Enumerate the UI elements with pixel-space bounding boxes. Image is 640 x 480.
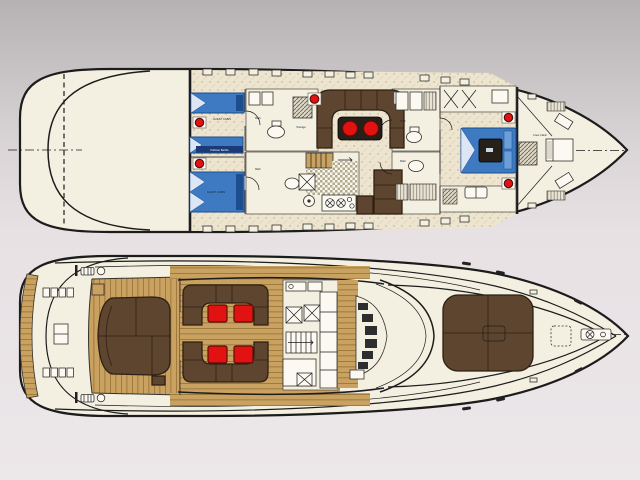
coffee-table bbox=[208, 346, 227, 363]
cockpit-locker bbox=[92, 284, 104, 295]
crew-cabin-label: Crew Cabin bbox=[533, 133, 548, 137]
locker-hatched bbox=[424, 92, 436, 110]
closet bbox=[410, 92, 422, 110]
washer-dryer bbox=[410, 184, 436, 200]
deck-fitting bbox=[441, 218, 450, 224]
deck-fitting bbox=[364, 72, 373, 78]
deck-fitting bbox=[528, 94, 536, 99]
helm-instrument bbox=[358, 362, 368, 369]
hatch-x bbox=[304, 305, 320, 321]
bath-shelf bbox=[262, 92, 273, 105]
deck-fitting bbox=[226, 69, 235, 75]
guest-cabin-label: GUEST CABIN bbox=[207, 190, 225, 194]
helm-instrument bbox=[362, 351, 373, 359]
helm-instrument bbox=[362, 314, 373, 322]
vanity bbox=[492, 90, 508, 103]
anchor-windlass bbox=[581, 329, 611, 340]
deck-fitting bbox=[203, 226, 212, 232]
bunk-pillow bbox=[547, 141, 552, 159]
toilet-tank bbox=[272, 121, 281, 126]
galley-checker-floor bbox=[332, 161, 358, 169]
deck-fitting bbox=[303, 224, 312, 230]
deck-fitting bbox=[303, 71, 312, 77]
deck-fitting bbox=[325, 224, 334, 230]
ceiling-lamp bbox=[502, 178, 515, 189]
deck-fitting bbox=[325, 71, 334, 77]
bed-pillow bbox=[504, 131, 512, 149]
helm-instrument bbox=[365, 326, 377, 335]
deck-fitting bbox=[226, 226, 235, 232]
yacht-deck-plan-image: Pullman Berths GUEST CABIN GUEST CABIN B… bbox=[0, 0, 640, 480]
dinette-table bbox=[343, 121, 358, 136]
deck-fitting bbox=[420, 220, 429, 226]
helm-instrument bbox=[365, 339, 377, 348]
shower-icon bbox=[299, 174, 315, 190]
deck-fitting bbox=[346, 72, 355, 78]
galley-stove bbox=[322, 195, 356, 211]
coffee-table bbox=[234, 305, 253, 322]
ceiling-lamp bbox=[502, 112, 515, 123]
bath-label: Bath bbox=[255, 167, 261, 171]
deck-fitting bbox=[364, 223, 373, 229]
helm-panel bbox=[350, 370, 364, 379]
staircase-down bbox=[286, 332, 317, 353]
deck-fitting bbox=[420, 75, 429, 81]
deck-fitting bbox=[203, 69, 212, 75]
galley-sink bbox=[304, 196, 315, 207]
dinette-salon bbox=[308, 90, 407, 148]
dinette-table bbox=[364, 121, 379, 136]
ceiling-lamp bbox=[308, 93, 321, 105]
washer-dryer bbox=[396, 184, 408, 200]
tank-hatched bbox=[547, 102, 565, 111]
toilet-icon bbox=[285, 178, 299, 189]
hatch-x bbox=[286, 307, 302, 323]
cleat bbox=[462, 406, 471, 410]
bath-label: Bath bbox=[400, 159, 406, 163]
toilet-icon bbox=[268, 126, 285, 138]
bath-shelf bbox=[249, 92, 260, 105]
bow-hatch bbox=[551, 326, 571, 346]
crew-stairs bbox=[519, 142, 537, 165]
toilet-icon bbox=[409, 161, 424, 172]
pullman-label: Pullman Berths bbox=[210, 148, 229, 152]
main-deck-plan bbox=[0, 240, 640, 480]
cleat bbox=[462, 261, 471, 265]
deck-fitting bbox=[272, 225, 281, 231]
deck-fitting bbox=[528, 203, 536, 208]
bed-pillow bbox=[236, 95, 243, 111]
cockpit bbox=[89, 277, 181, 395]
bed-pillow bbox=[236, 174, 243, 210]
closet bbox=[396, 92, 408, 110]
deck-fitting bbox=[249, 69, 258, 75]
coffee-table bbox=[234, 346, 253, 363]
coffee-table bbox=[208, 305, 227, 322]
nightstand-lamp bbox=[193, 158, 206, 169]
deck-fitting bbox=[346, 223, 355, 229]
counter-top bbox=[308, 282, 322, 291]
deck-fitting bbox=[272, 70, 281, 76]
deck-fitting bbox=[460, 79, 469, 85]
deck-fitting bbox=[530, 290, 537, 294]
nightstand-lamp bbox=[193, 117, 206, 128]
tall-cabinet bbox=[320, 292, 337, 388]
bed-pillow bbox=[504, 151, 512, 169]
console-detail bbox=[486, 148, 493, 152]
tank-hatched bbox=[547, 191, 565, 200]
storage-label: Storage bbox=[296, 125, 306, 129]
toilet-icon bbox=[407, 132, 422, 143]
deck-fitting bbox=[530, 378, 537, 382]
helm-instrument bbox=[358, 303, 368, 310]
guest-cabin-label: GUEST CABIN bbox=[213, 117, 231, 121]
staircase-wood bbox=[306, 153, 333, 168]
guest-cabins: Pullman Berths GUEST CABIN GUEST CABIN bbox=[190, 93, 244, 212]
deck-fitting bbox=[441, 77, 450, 83]
bath-label: Bath bbox=[255, 116, 261, 120]
lower-deck-plan: Pullman Berths GUEST CABIN GUEST CABIN B… bbox=[0, 0, 640, 240]
vip-rug bbox=[443, 189, 457, 204]
bath-label: Bath bbox=[400, 119, 406, 123]
cockpit-side-seat bbox=[152, 376, 165, 385]
hatch-x bbox=[297, 373, 312, 386]
deck-fitting bbox=[460, 216, 469, 222]
galley-cabinet bbox=[357, 196, 373, 214]
deck-fitting bbox=[249, 226, 258, 232]
galley-block bbox=[283, 280, 338, 390]
